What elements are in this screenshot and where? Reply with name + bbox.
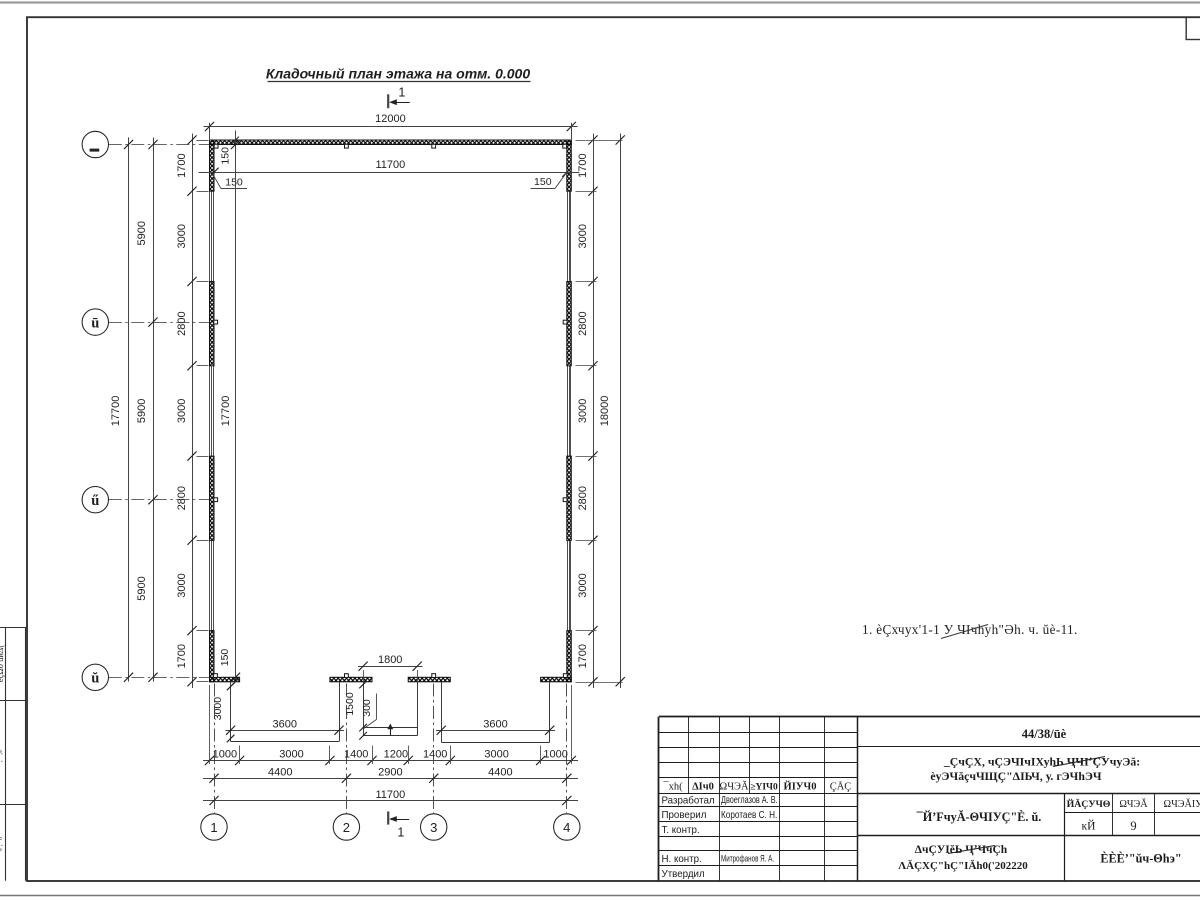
- svg-text:Двоеглазов А. В.: Двоеглазов А. В.: [721, 794, 778, 805]
- svg-text:3000: 3000: [176, 399, 188, 423]
- svg-text:150: 150: [225, 176, 243, 188]
- svg-text:Н. контр.: Н. контр.: [662, 854, 702, 865]
- svg-text:1000: 1000: [213, 748, 237, 760]
- svg-text:Т. контр.: Т. контр.: [662, 825, 700, 836]
- svg-text:17700: 17700: [110, 396, 122, 427]
- svg-text:ΩЧЭĂIУ: ΩЧЭĂIУ: [1164, 798, 1200, 810]
- svg-text:3000: 3000: [176, 573, 188, 597]
- svg-text:5900: 5900: [136, 399, 148, 423]
- svg-text:11700: 11700: [376, 789, 406, 801]
- svg-text:Коротаев С. Н.: Коротаев С. Н.: [721, 809, 777, 820]
- svg-text:1700: 1700: [577, 644, 589, 668]
- svg-text:1: 1: [397, 826, 404, 840]
- svg-text:3000: 3000: [577, 224, 589, 248]
- svg-text:_ÇчÇХ, чÇЭЧIчIХуhЬ ҶЧIʼÇУчуЭă:: _ÇчÇХ, чÇЭЧIчIХуhЬ ҶЧIʼÇУчуЭă:: [943, 755, 1140, 769]
- svg-text:ΩЧЭĂ: ΩЧЭĂ: [719, 780, 749, 792]
- svg-text:ΩЧЭĂ: ΩЧЭĂ: [1119, 798, 1148, 810]
- svg-text:Утвердил: Утвердил: [662, 869, 705, 880]
- svg-text:1800: 1800: [378, 654, 402, 666]
- svg-text:3: 3: [430, 820, 437, 835]
- svg-text:1200: 1200: [384, 748, 408, 760]
- svg-text:ЙĂÇУЧΘ: ЙĂÇУЧΘ: [1067, 798, 1111, 810]
- svg-text:ū: ū: [91, 315, 99, 331]
- svg-text:4400: 4400: [488, 766, 512, 778]
- svg-text:5900: 5900: [136, 221, 148, 245]
- svg-text:3000: 3000: [577, 573, 589, 597]
- svg-text:150: 150: [534, 176, 552, 188]
- svg-text:18000: 18000: [599, 396, 611, 427]
- svg-text:1700: 1700: [176, 153, 188, 177]
- svg-text:1400: 1400: [423, 748, 447, 760]
- svg-text:11700: 11700: [376, 159, 406, 171]
- svg-text:ЙIУЧ0: ЙIУЧ0: [784, 780, 817, 792]
- svg-text:кЙ: кЙ: [1082, 819, 1096, 833]
- svg-text:3000: 3000: [212, 697, 224, 721]
- svg-text:¯ЙʼFчуĂ-ΘЧIУÇ"È. ŭ.: ¯ЙʼFчуĂ-ΘЧIУÇ"È. ŭ.: [916, 810, 1042, 824]
- svg-text:≥YIЧ0: ≥YIЧ0: [750, 782, 778, 792]
- svg-text:ÈÈÈʼ"ŭч-Θhэ": ÈÈÈʼ"ŭч-Θhэ": [1100, 852, 1181, 866]
- svg-text:1700: 1700: [176, 644, 188, 668]
- svg-text:2800: 2800: [176, 311, 188, 335]
- svg-text:2800: 2800: [577, 311, 589, 335]
- svg-text:3600: 3600: [273, 718, 297, 730]
- svg-text:9: 9: [1130, 819, 1136, 833]
- svg-text:ΔIч0: ΔIч0: [692, 781, 714, 792]
- svg-text:¯xh(: ¯xh(: [662, 781, 683, 792]
- svg-text:Кладочный план этажа на отм. 0: Кладочный план этажа на отм. 0.000: [266, 66, 530, 82]
- svg-text:1: 1: [210, 820, 217, 835]
- svg-text:1: 1: [398, 85, 405, 99]
- svg-text:Разработал: Разработал: [662, 794, 715, 806]
- svg-text:300: 300: [361, 699, 373, 717]
- svg-text:1400: 1400: [344, 748, 368, 760]
- svg-text:5900: 5900: [136, 576, 148, 600]
- svg-text:èуЭЧăçчЧЩÇ"ΔIЬЧ, у. гЭЧhЭЧ: èуЭЧăçчЧЩÇ"ΔIЬЧ, у. гЭЧhЭЧ: [930, 769, 1101, 783]
- svg-text:4: 4: [563, 820, 570, 835]
- svg-text:2900: 2900: [378, 766, 402, 778]
- svg-text:3000: 3000: [176, 224, 188, 248]
- svg-text:ű: ű: [91, 493, 99, 509]
- svg-text:12000: 12000: [375, 113, 406, 125]
- svg-text:3600: 3600: [483, 718, 507, 730]
- svg-text:1500: 1500: [344, 692, 356, 716]
- svg-text:ŭ: ŭ: [91, 671, 99, 687]
- svg-text:Митрофанов Я. А.: Митрофанов Я. А.: [721, 853, 774, 864]
- svg-text:4400: 4400: [268, 766, 292, 778]
- svg-text:1700: 1700: [577, 153, 589, 177]
- svg-text:3000: 3000: [279, 748, 303, 760]
- svg-text:2: 2: [343, 820, 350, 835]
- svg-text:150: 150: [220, 147, 232, 165]
- svg-text:ΛĂÇХÇ"hÇ"IĂh0('202220: ΛĂÇХÇ"hÇ"IĂh0('202220: [898, 860, 1028, 872]
- svg-text:2800: 2800: [176, 486, 188, 510]
- svg-text:2800: 2800: [577, 486, 589, 510]
- svg-text:3000: 3000: [484, 748, 508, 760]
- svg-text:44/38/ūè: 44/38/ūè: [1022, 727, 1067, 741]
- svg-text:1000: 1000: [543, 748, 567, 760]
- svg-text:17700: 17700: [220, 396, 232, 427]
- svg-text:150: 150: [219, 649, 231, 667]
- svg-text:ʼ, ʼ ,ĕ ʼ: ʼ, ʼ ,ĕ ʼ: [0, 746, 4, 765]
- svg-text:Проверил: Проверил: [662, 810, 707, 821]
- svg-text:ÇÅÇ: ÇÅÇ: [830, 780, 852, 792]
- svg-text:ĕçΩ0 ũйΔ(: ĕçΩ0 ũйΔ(: [0, 645, 5, 683]
- svg-text:ʼĕ , ʼ0: ʼĕ , ʼ0: [0, 836, 4, 853]
- svg-text:3000: 3000: [577, 399, 589, 423]
